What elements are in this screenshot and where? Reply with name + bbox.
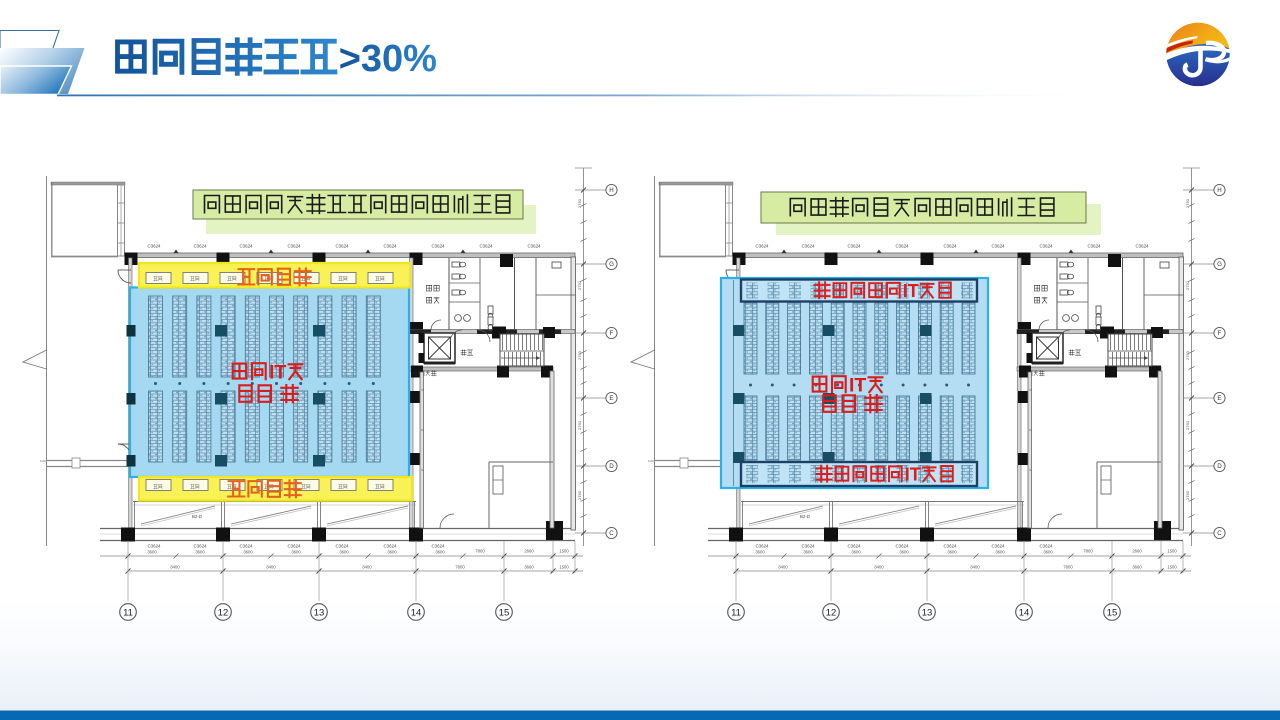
svg-text:C3624: C3624 (194, 244, 207, 249)
svg-text:C3624: C3624 (384, 244, 397, 249)
svg-text:2750: 2750 (577, 490, 582, 500)
svg-text:H: H (609, 187, 613, 194)
svg-text:3600: 3600 (435, 550, 445, 555)
svg-text:C3624: C3624 (288, 544, 301, 549)
svg-text:12: 12 (218, 607, 229, 618)
svg-text:14: 14 (411, 607, 422, 618)
svg-text:C3624: C3624 (240, 544, 253, 549)
svg-text:3600: 3600 (387, 550, 397, 555)
svg-text:2750: 2750 (577, 198, 582, 208)
svg-text:2750: 2750 (577, 280, 582, 290)
svg-text:1500: 1500 (559, 565, 569, 570)
svg-text:11: 11 (123, 607, 133, 618)
svg-text:D: D (609, 463, 614, 470)
svg-text:C3624: C3624 (336, 244, 349, 249)
svg-text:2750: 2750 (577, 420, 582, 430)
svg-text:G: G (609, 261, 614, 268)
svg-text:C3624: C3624 (148, 244, 161, 249)
svg-text:8400: 8400 (362, 565, 372, 570)
svg-text:C3624: C3624 (384, 544, 397, 549)
svg-text:3600: 3600 (291, 550, 301, 555)
svg-text:C3624: C3624 (336, 544, 349, 549)
svg-text:2600: 2600 (524, 549, 534, 554)
svg-text:C3624: C3624 (432, 544, 445, 549)
svg-text:7800: 7800 (455, 565, 465, 570)
svg-text:IT: IT (903, 281, 919, 301)
svg-text:IT: IT (905, 465, 921, 485)
svg-text:8400: 8400 (170, 565, 180, 570)
svg-text:3600: 3600 (524, 565, 534, 570)
svg-text:15: 15 (499, 607, 510, 618)
svg-text:C3624: C3624 (480, 244, 493, 249)
svg-text:IT: IT (269, 362, 286, 384)
svg-text:3600: 3600 (243, 550, 253, 555)
svg-text:>30%: >30% (339, 38, 437, 80)
svg-text:3600: 3600 (195, 550, 205, 555)
svg-text:C3624: C3624 (194, 544, 207, 549)
svg-text:1500: 1500 (559, 549, 569, 554)
svg-text:8400: 8400 (266, 565, 276, 570)
svg-text:3600: 3600 (339, 550, 349, 555)
svg-text:C3624: C3624 (528, 244, 541, 249)
svg-text:B2-D: B2-D (192, 514, 202, 519)
svg-text:C3624: C3624 (240, 244, 253, 249)
svg-text:3600: 3600 (147, 550, 157, 555)
svg-text:F: F (610, 330, 614, 337)
svg-text:C3624: C3624 (148, 544, 161, 549)
svg-text:IT: IT (849, 375, 866, 397)
svg-text:13: 13 (314, 607, 325, 618)
svg-text:C3624: C3624 (288, 244, 301, 249)
svg-text:C: C (609, 530, 614, 537)
svg-text:2750: 2750 (577, 350, 582, 360)
svg-text:E: E (609, 395, 613, 402)
svg-text:7800: 7800 (475, 549, 485, 554)
svg-text:C3624: C3624 (432, 244, 445, 249)
